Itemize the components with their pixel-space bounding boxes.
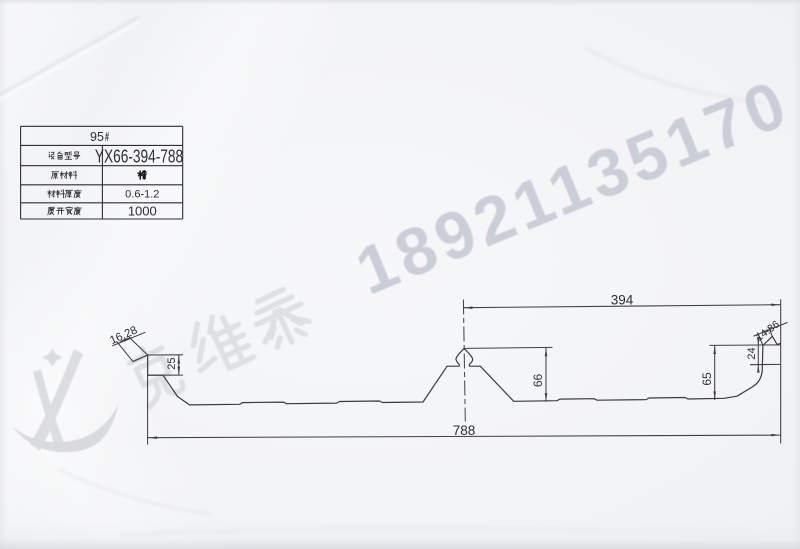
svg-text:1000: 1000 [128,204,157,219]
svg-text:0.6-1.2: 0.6-1.2 [125,189,159,201]
svg-text:65: 65 [700,372,714,386]
svg-text:16.28: 16.28 [108,324,139,347]
svg-text:25: 25 [166,357,178,369]
svg-text:18921135170: 18921135170 [346,65,800,309]
svg-text:394: 394 [611,292,634,307]
svg-text:#: # [105,131,109,145]
svg-text:95: 95 [90,130,104,144]
svg-text:66: 66 [531,374,545,388]
svg-text:788: 788 [453,423,476,438]
svg-text:YX66-394-788: YX66-394-788 [95,146,183,166]
svg-text:24: 24 [746,347,758,359]
